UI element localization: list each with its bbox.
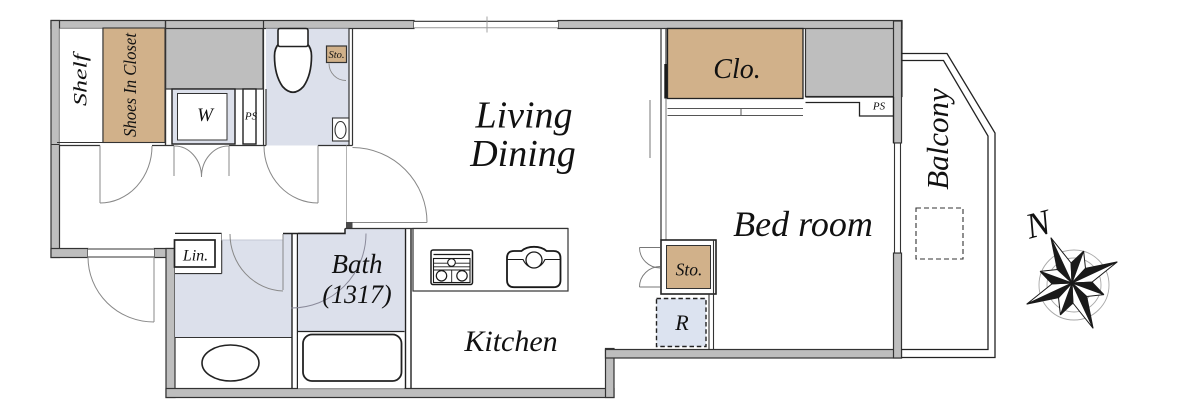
svg-text:Bed room: Bed room: [733, 204, 873, 244]
svg-text:Kitchen: Kitchen: [463, 325, 557, 358]
svg-text:Bath: Bath: [332, 249, 383, 279]
svg-text:Shoes In Closet: Shoes In Closet: [120, 32, 140, 137]
svg-text:Shelf: Shelf: [71, 50, 92, 106]
svg-text:Living: Living: [474, 95, 572, 137]
svg-text:(1317): (1317): [322, 280, 391, 309]
svg-text:Balcony: Balcony: [920, 88, 955, 190]
svg-text:PS: PS: [244, 111, 258, 123]
svg-text:R: R: [674, 310, 689, 335]
svg-text:Lin.: Lin.: [182, 248, 208, 265]
svg-text:PS: PS: [872, 101, 886, 113]
svg-text:W: W: [197, 105, 215, 126]
svg-text:Dining: Dining: [469, 133, 576, 175]
svg-text:Sto.: Sto.: [676, 260, 703, 280]
svg-text:Sto.: Sto.: [328, 50, 344, 61]
svg-text:Clo.: Clo.: [713, 54, 760, 85]
